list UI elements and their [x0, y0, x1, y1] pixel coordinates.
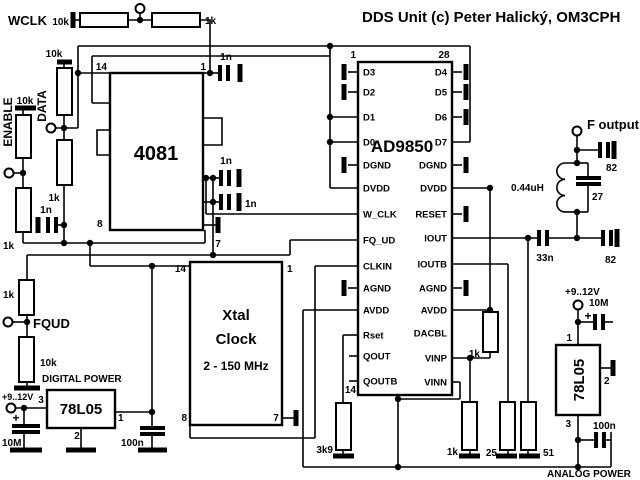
pin-ad9850-28: 28	[438, 50, 450, 61]
pin-label-vinp: VINP	[425, 354, 448, 365]
value-fqud-pull: 10k	[40, 358, 57, 369]
pin-label-avdd-l: AVDD	[363, 306, 389, 317]
schematic-title: DDS Unit (c) Peter Halický, OM3CPH	[362, 9, 620, 26]
resistor-enable-series	[16, 188, 31, 232]
pin-label-d0: D0	[363, 138, 375, 149]
pin-label-d4: D4	[435, 68, 448, 79]
pin-4081-7: 7	[215, 239, 221, 250]
resistor-ioutb-load	[500, 402, 515, 450]
pin-label-ioutb: IOUTB	[417, 260, 447, 271]
pin-reg2-2: 2	[604, 376, 610, 387]
pin-reg1-2: 2	[74, 431, 80, 442]
resistor-fqud-pull	[19, 337, 34, 382]
value-fqud-series: 1k	[3, 290, 15, 301]
value-cout-digital: 100n	[121, 438, 144, 449]
value-cap-top: 82	[606, 163, 618, 174]
resistor-wclk-series	[152, 13, 200, 27]
connector-data	[47, 124, 56, 133]
schematic-page: DDS Unit (c) Peter Halický, OM3CPH WCLK …	[0, 0, 640, 480]
value-wclk-series: 1k	[205, 16, 217, 27]
resistor-wclk-pull	[80, 13, 128, 27]
pin-xtal-8: 8	[181, 413, 187, 424]
value-data-pull: 10k	[46, 49, 63, 60]
ic-4081-label: 4081	[134, 143, 179, 165]
reg2-label: 78L05	[571, 359, 588, 402]
value-vinp-load: 1k	[447, 447, 459, 458]
inductor-coil	[557, 163, 577, 212]
value-tank-cap: 27	[592, 192, 604, 203]
pin-reg1-3: 3	[38, 395, 44, 406]
pin-xtal-7: 7	[273, 413, 279, 424]
pin-reg1-1: 1	[118, 413, 124, 424]
pin-ad9850-1: 1	[350, 50, 356, 61]
pin-label-d3: D3	[363, 68, 375, 79]
pin-reg2-3: 3	[565, 419, 571, 430]
resistor-iout-load	[521, 402, 536, 450]
dds-schematic: DDS Unit (c) Peter Halický, OM3CPH WCLK …	[0, 0, 640, 480]
plus-analog: +	[584, 309, 591, 323]
pin-label-vinn: VINN	[424, 378, 447, 389]
pin-label-dgnd-l: DGND	[363, 161, 391, 172]
pin-label-d7: D7	[435, 138, 447, 149]
pin-label-rset: Rset	[363, 331, 384, 342]
pin-label-dgnd-r: DGND	[419, 161, 447, 172]
pin-4081-14: 14	[96, 62, 108, 73]
ic-ad9850-label: AD9850	[371, 137, 433, 156]
value-cap-pin1: 1n	[220, 52, 232, 63]
connector-vin-analog	[574, 301, 583, 310]
value-enable-pull: 10k	[17, 96, 34, 107]
pin-label-d6: D6	[435, 113, 447, 124]
value-wclk-pull: 10k	[52, 17, 69, 28]
value-cin-digital: 10M	[2, 438, 21, 449]
connector-fqud	[4, 318, 13, 327]
pin-reg2-1: 1	[566, 333, 572, 344]
value-cap-fqud: 1n	[245, 199, 257, 210]
value-inductor: 0.44uH	[511, 183, 544, 194]
label-enable: ENABLE	[1, 97, 15, 146]
value-vinp-bias: 1k	[469, 349, 481, 360]
value-ioutb-load: 25	[486, 448, 498, 459]
resistor-data-pull	[57, 68, 72, 115]
resistor-enable-pull	[16, 115, 31, 158]
value-coupling-cap: 33n	[536, 253, 553, 264]
pin-label-iout: IOUT	[424, 234, 447, 245]
label-data: DATA	[35, 90, 49, 122]
pin-label-dvdd-l: DVDD	[363, 184, 390, 195]
value-data-series: 1k	[48, 193, 60, 204]
section-analog-power: ANALOG POWER	[547, 469, 632, 480]
resistor-data-series	[57, 140, 72, 185]
resistor-vinp-bias	[483, 312, 498, 352]
pin-label-d5: D5	[435, 88, 448, 99]
pin-label-avdd-r: AVDD	[421, 306, 447, 317]
reg1-label: 78L05	[60, 401, 103, 418]
pin-4081-1: 1	[200, 62, 206, 73]
value-enable-series: 1k	[3, 241, 15, 252]
pin-label-d1: D1	[363, 113, 376, 124]
resistor-rset	[336, 403, 351, 450]
pin-xtal-1: 1	[287, 264, 293, 275]
resistor-fqud-series	[19, 280, 34, 315]
label-vin-digital: +9..12V	[2, 392, 33, 402]
connector-f-output	[573, 127, 582, 136]
value-data-cap: 1n	[40, 205, 52, 216]
value-cap-wclk: 1n	[220, 156, 232, 167]
value-rset: 3k9	[316, 445, 333, 456]
xtal-label-2: Clock	[216, 331, 258, 348]
label-wclk: WCLK	[8, 13, 48, 28]
plus-digital: +	[12, 411, 19, 425]
pin-label-dacbl: DACBL	[414, 329, 447, 340]
label-f-output: F output	[587, 117, 640, 132]
value-cap-bottom: 82	[605, 255, 617, 266]
pin-label-dvdd-r: DVDD	[420, 184, 447, 195]
pin-label-qout: QOUT	[363, 352, 391, 363]
resistor-vinp-load	[462, 402, 477, 450]
pin-xtal-14: 14	[175, 264, 187, 275]
pin-label-agnd-r: AGND	[419, 284, 447, 295]
pin-label-agnd-l: AGND	[363, 284, 391, 295]
pin-label-clkin: CLKIN	[363, 262, 392, 273]
pin-label-fqud: FQ_UD	[363, 236, 395, 247]
label-fqud: FQUD	[33, 316, 70, 331]
pin-4081-8: 8	[97, 219, 103, 230]
pin-label-wclk: W_CLK	[363, 210, 397, 221]
label-vin-analog: +9..12V	[565, 287, 600, 298]
value-iout-load: 51	[543, 448, 555, 459]
pin-label-qoutb: QOUTB	[363, 377, 397, 388]
pin-label-d2: D2	[363, 88, 375, 99]
value-cout-analog: 100n	[593, 421, 616, 432]
xtal-label-3: 2 - 150 MHz	[203, 359, 268, 373]
connector-enable	[5, 169, 14, 178]
xtal-label-1: Xtal	[222, 307, 250, 324]
pin-label-reset: RESET	[415, 210, 447, 221]
pin-ad9850-14: 14	[345, 385, 357, 396]
connector-wclk	[136, 4, 145, 13]
value-cin-analog: 10M	[589, 298, 608, 309]
section-digital-power: DIGITAL POWER	[42, 374, 122, 385]
